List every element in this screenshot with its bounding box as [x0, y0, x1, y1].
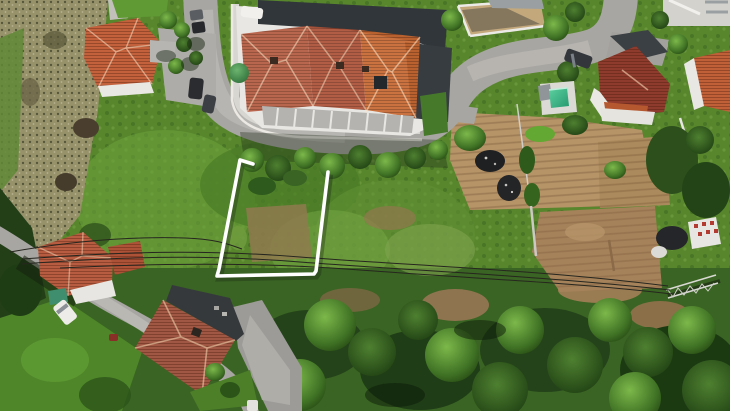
car	[191, 21, 205, 34]
pool-area	[538, 81, 577, 115]
aerial-photo-stage	[0, 0, 730, 411]
car	[188, 77, 204, 99]
white-car	[247, 400, 258, 411]
house-complex-center	[229, 0, 452, 136]
aerial-photo	[0, 0, 730, 411]
red-car	[109, 334, 118, 341]
car	[189, 9, 203, 21]
swimming-pool	[549, 88, 569, 108]
green-dome-tank	[229, 63, 249, 83]
